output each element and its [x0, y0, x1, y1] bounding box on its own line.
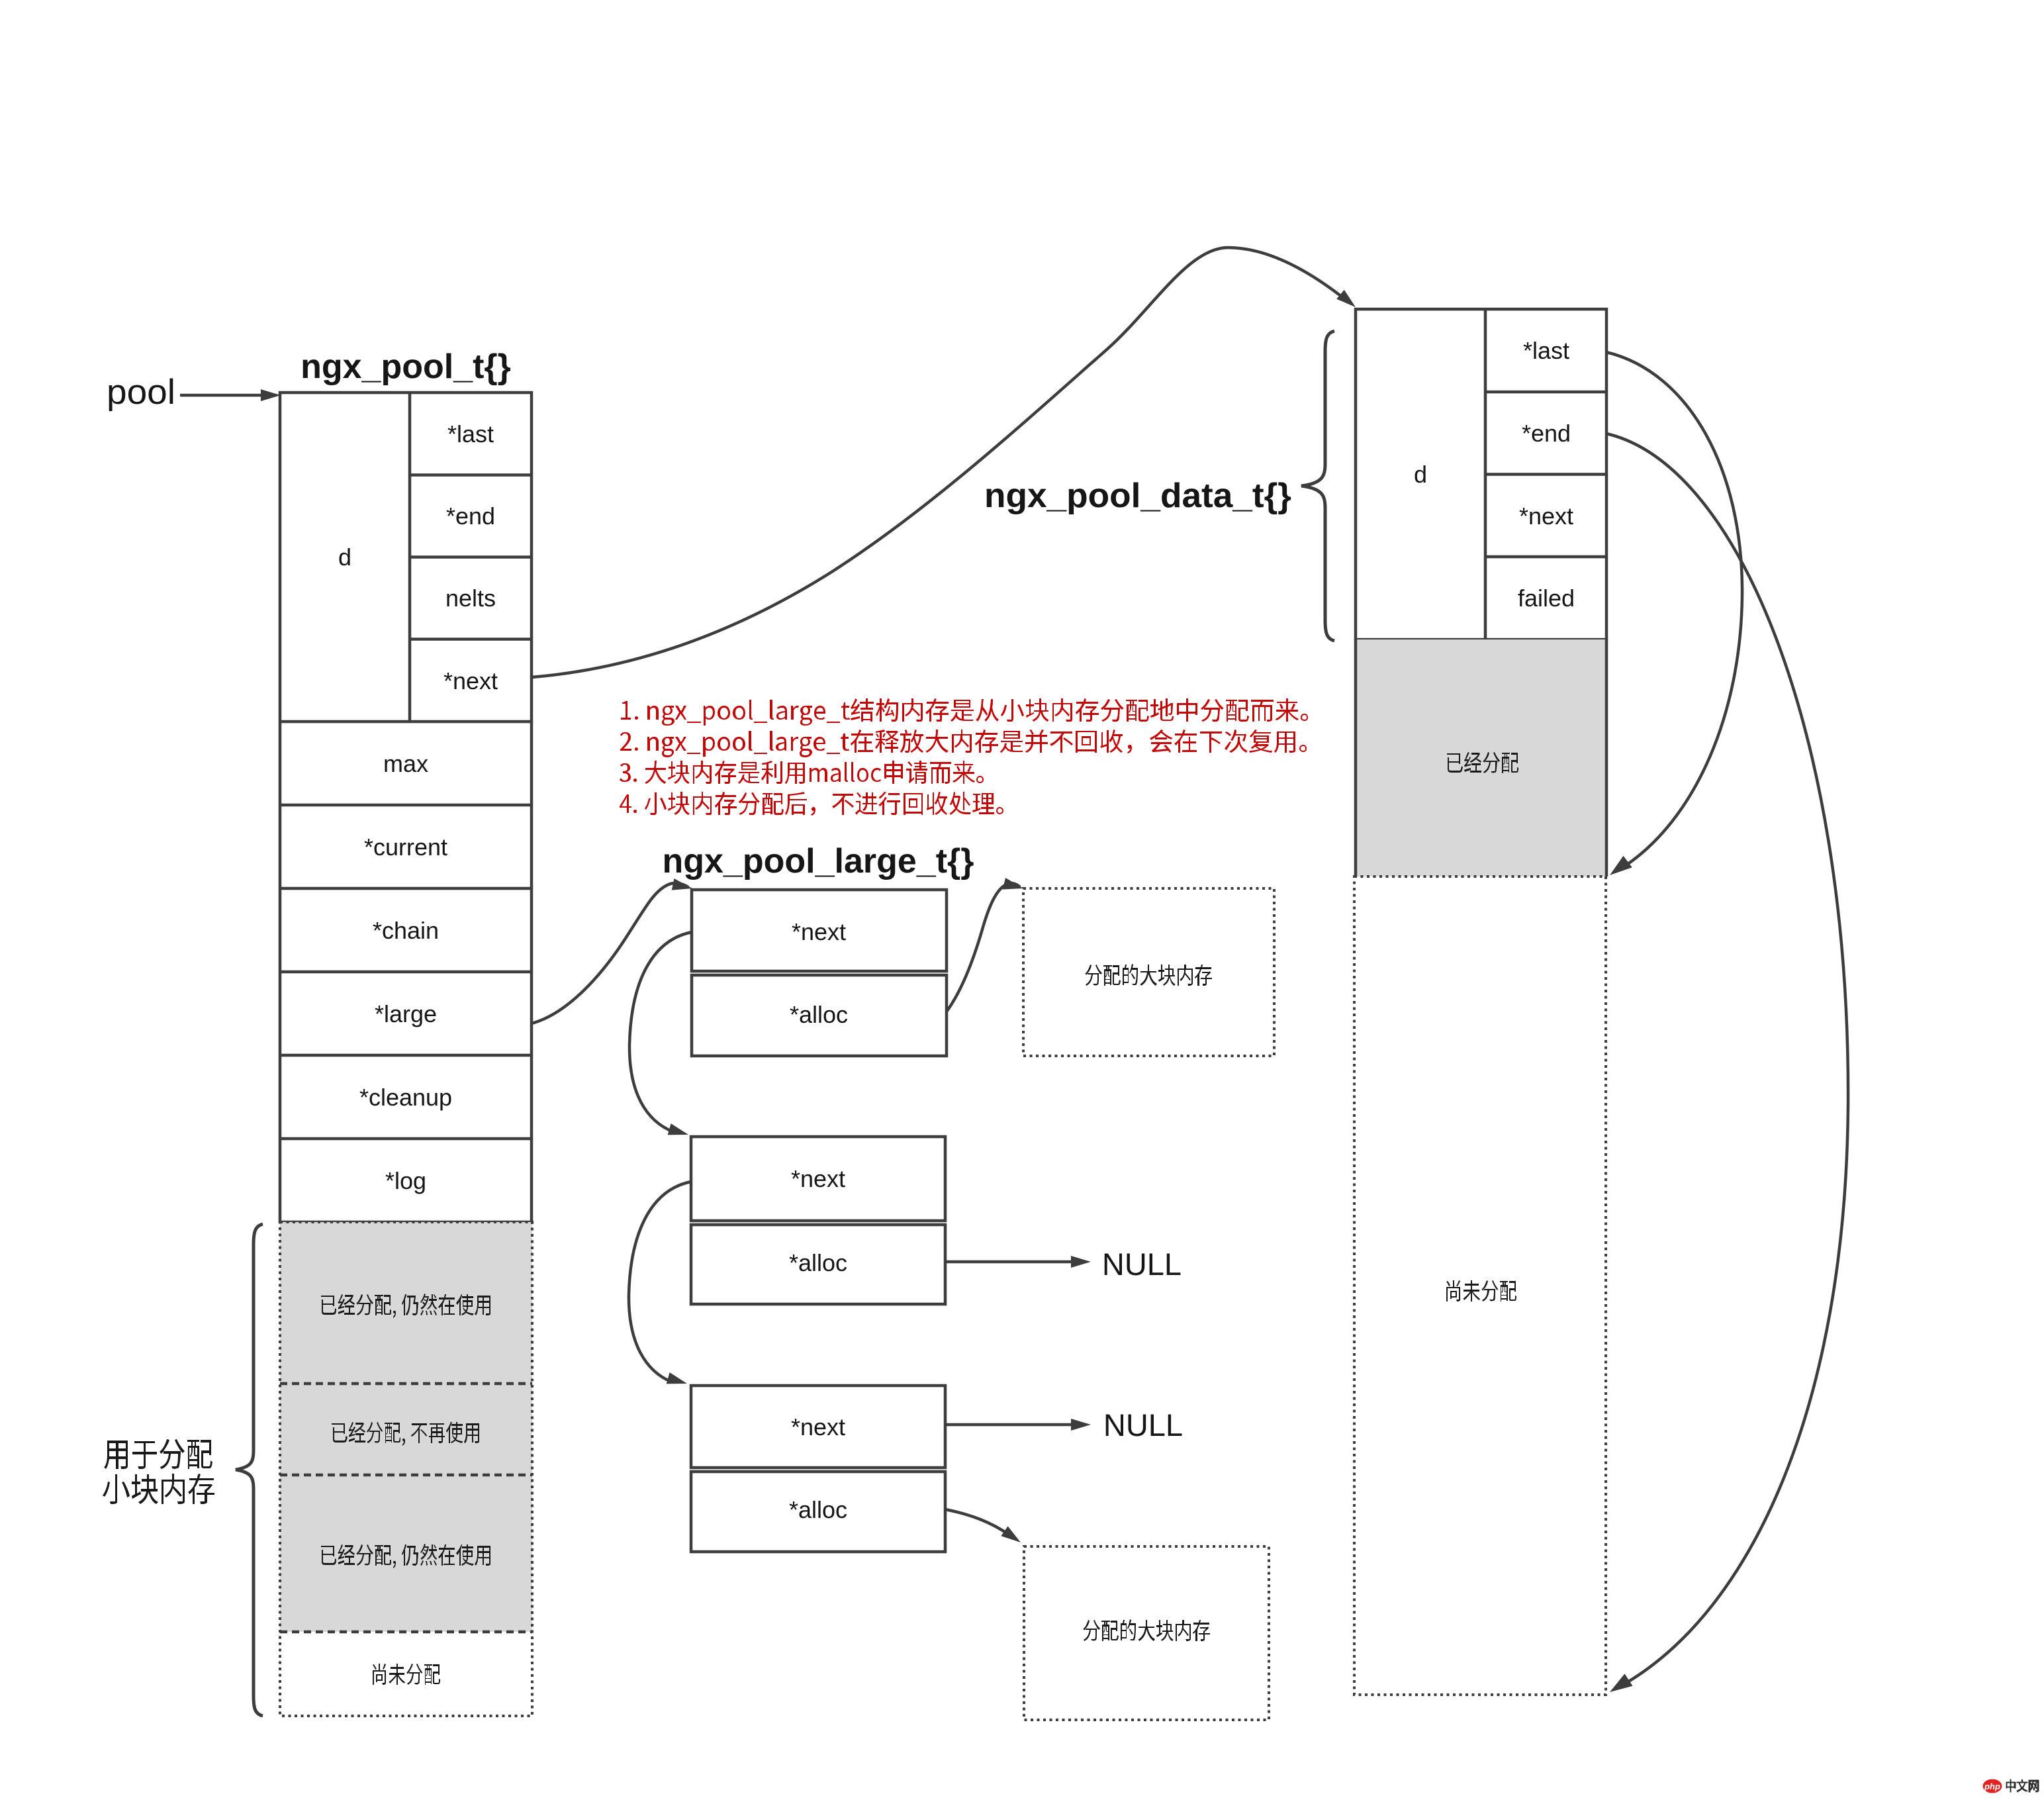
svg-text:*alloc: *alloc	[789, 1496, 847, 1523]
svg-text:NULL: NULL	[1103, 1407, 1183, 1443]
svg-text:*end: *end	[1522, 420, 1571, 447]
svg-text:failed: failed	[1518, 585, 1575, 612]
svg-text:*last: *last	[447, 420, 494, 448]
svg-text:ngx_pool_t{}: ngx_pool_t{}	[301, 348, 511, 386]
svg-text:*alloc: *alloc	[790, 1001, 848, 1028]
svg-text:*current: *current	[364, 833, 447, 861]
svg-text:*last: *last	[1523, 337, 1569, 364]
svg-text:NULL: NULL	[1102, 1247, 1182, 1282]
svg-text:pool: pool	[107, 373, 175, 412]
svg-text:*next: *next	[443, 667, 498, 694]
svg-text:d: d	[1414, 461, 1427, 488]
svg-text:*large: *large	[375, 1000, 437, 1027]
svg-text:*next: *next	[792, 918, 846, 945]
svg-text:*next: *next	[1519, 502, 1573, 530]
svg-text:*log: *log	[385, 1167, 426, 1194]
svg-text:*cleanup: *cleanup	[359, 1084, 452, 1111]
svg-text:max: max	[383, 750, 428, 777]
svg-text:*chain: *chain	[373, 917, 439, 944]
svg-text:php: php	[1984, 1781, 2000, 1791]
svg-text:*end: *end	[446, 502, 495, 530]
svg-text:nelts: nelts	[445, 585, 496, 612]
svg-text:ngx_pool_large_t{}: ngx_pool_large_t{}	[662, 842, 974, 880]
svg-text:d: d	[338, 544, 351, 571]
svg-text:*next: *next	[791, 1165, 845, 1192]
svg-text:*alloc: *alloc	[789, 1249, 847, 1276]
svg-text:ngx_pool_data_t{}: ngx_pool_data_t{}	[984, 477, 1291, 515]
svg-text:*next: *next	[791, 1413, 845, 1441]
